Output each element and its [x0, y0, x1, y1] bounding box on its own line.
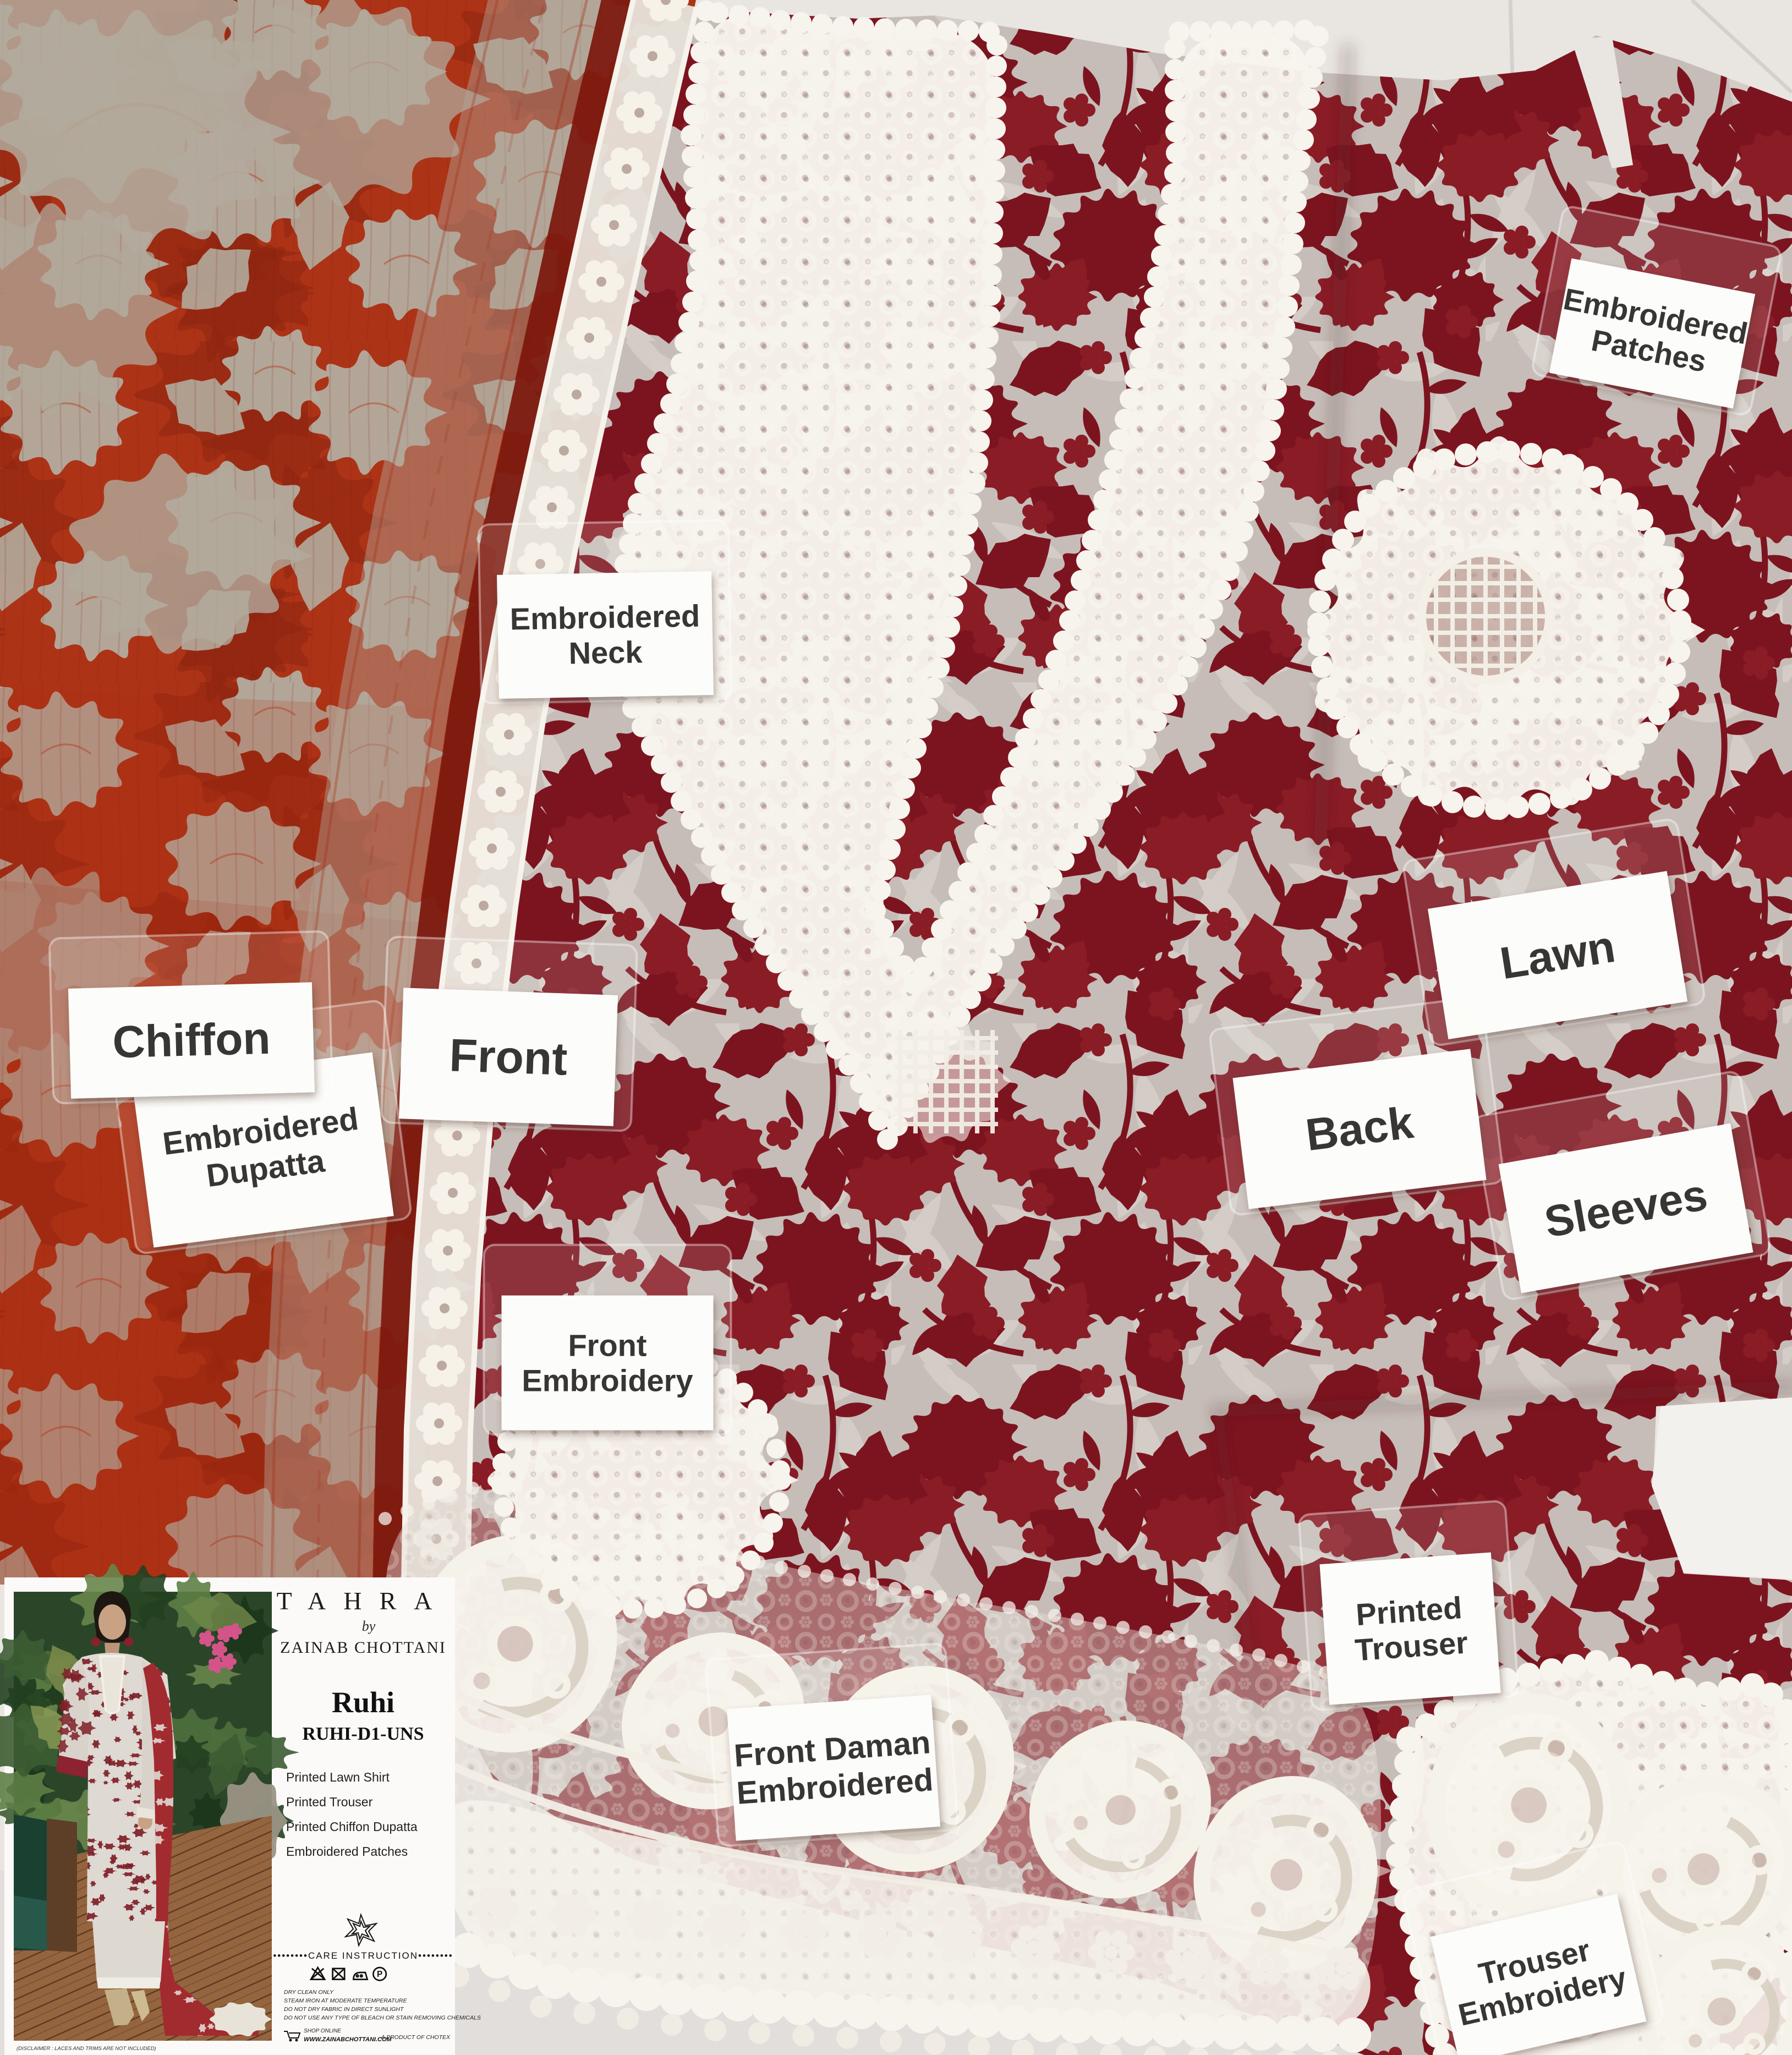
svg-text:Front: Front	[448, 1029, 568, 1084]
svg-text:P: P	[377, 1970, 382, 1979]
svg-text:Printed Chiffon Dupatta: Printed Chiffon Dupatta	[286, 1820, 418, 1834]
svg-text:••••••••CARE INSTRUCTION••••••: ••••••••CARE INSTRUCTION••••••••	[273, 1950, 453, 1961]
svg-text:A PRODUCT OF CHOTEX: A PRODUCT OF CHOTEX	[381, 2034, 451, 2041]
svg-text:TAHRA: TAHRA	[277, 1587, 450, 1615]
svg-text:Front: Front	[568, 1328, 646, 1363]
svg-text:DRY CLEAN ONLY: DRY CLEAN ONLY	[284, 1989, 334, 1996]
svg-text:SHOP ONLINE: SHOP ONLINE	[304, 2028, 341, 2034]
svg-text:by: by	[362, 1618, 376, 1634]
svg-text:(DISCLAIMER : LACES AND TRIMS: (DISCLAIMER : LACES AND TRIMS ARE NOT IN…	[17, 2046, 156, 2052]
svg-text:Neck: Neck	[568, 634, 643, 670]
svg-text:Embroidery: Embroidery	[522, 1363, 693, 1398]
svg-text:Ruhi: Ruhi	[332, 1686, 394, 1719]
svg-text:WWW.ZAINABCHOTTANI.COM: WWW.ZAINABCHOTTANI.COM	[304, 2036, 392, 2043]
svg-text:DO NOT DRY FABRIC IN DIRECT SU: DO NOT DRY FABRIC IN DIRECT SUNLIGHT	[284, 2006, 404, 2013]
svg-text:Printed: Printed	[1355, 1590, 1463, 1632]
svg-text:Embroidered Patches: Embroidered Patches	[286, 1844, 408, 1859]
svg-text:RUHI-D1-UNS: RUHI-D1-UNS	[303, 1724, 424, 1744]
svg-text:Printed Trouser: Printed Trouser	[286, 1795, 373, 1809]
svg-text:Chiffon: Chiffon	[112, 1013, 271, 1067]
svg-text:ZAINAB CHOTTANI: ZAINAB CHOTTANI	[280, 1638, 446, 1657]
svg-text:STEAM IRON AT MODERATE TEMPERA: STEAM IRON AT MODERATE TEMPERATURE	[284, 1998, 408, 2004]
svg-text:Printed Lawn Shirt: Printed Lawn Shirt	[286, 1770, 390, 1784]
svg-text:Embroidered: Embroidered	[509, 598, 700, 636]
svg-text:DO NOT USE ANY TYPE OF BLEACH: DO NOT USE ANY TYPE OF BLEACH OR STAIN R…	[284, 2015, 481, 2021]
